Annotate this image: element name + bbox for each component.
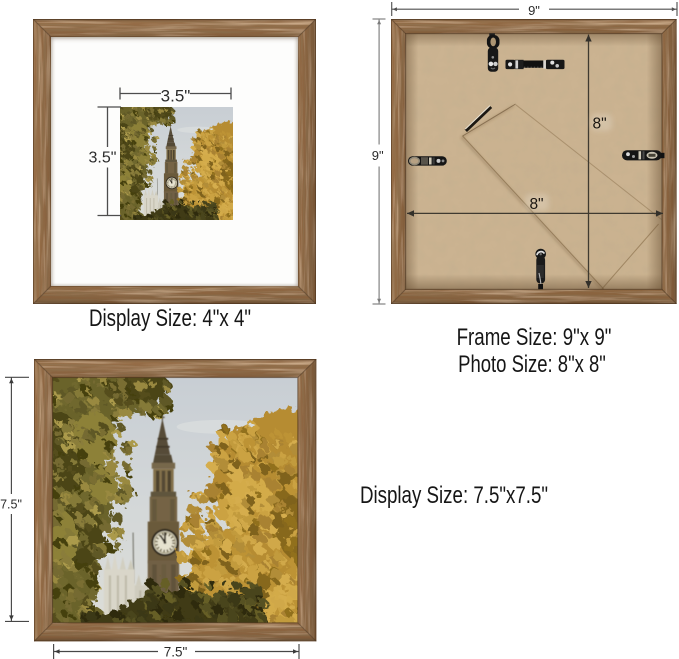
svg-text:7.5": 7.5" <box>164 644 188 659</box>
svg-text:9": 9" <box>528 3 540 18</box>
svg-text:8": 8" <box>529 196 543 213</box>
svg-text:7.5": 7.5" <box>0 498 22 512</box>
svg-text:3.5": 3.5" <box>89 150 117 167</box>
svg-text:9": 9" <box>372 148 384 163</box>
svg-text:8": 8" <box>593 116 607 133</box>
svg-text:3.5": 3.5" <box>161 87 191 106</box>
